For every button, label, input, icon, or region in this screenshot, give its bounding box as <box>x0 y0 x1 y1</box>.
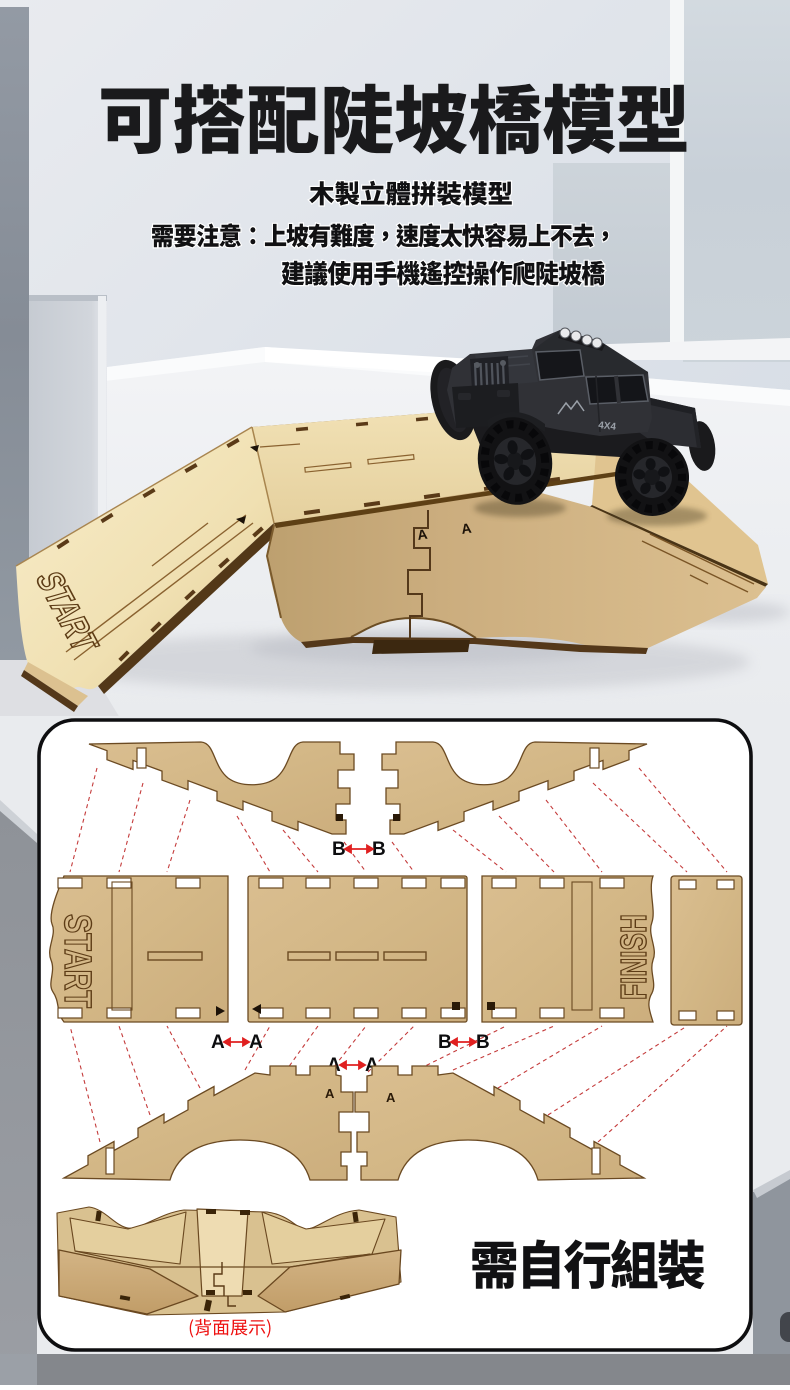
svg-text:START: START <box>56 914 98 1008</box>
svg-text:B: B <box>332 839 346 860</box>
svg-text:FINISH: FINISH <box>613 914 654 1000</box>
svg-text:B: B <box>372 839 386 860</box>
svg-text:A: A <box>325 1086 335 1101</box>
svg-text:B: B <box>476 1032 490 1053</box>
svg-text:B: B <box>438 1032 452 1053</box>
svg-text:4X4: 4X4 <box>598 420 617 433</box>
svg-text:A: A <box>211 1032 225 1053</box>
svg-text:A: A <box>249 1032 263 1053</box>
svg-text:A: A <box>386 1090 396 1105</box>
